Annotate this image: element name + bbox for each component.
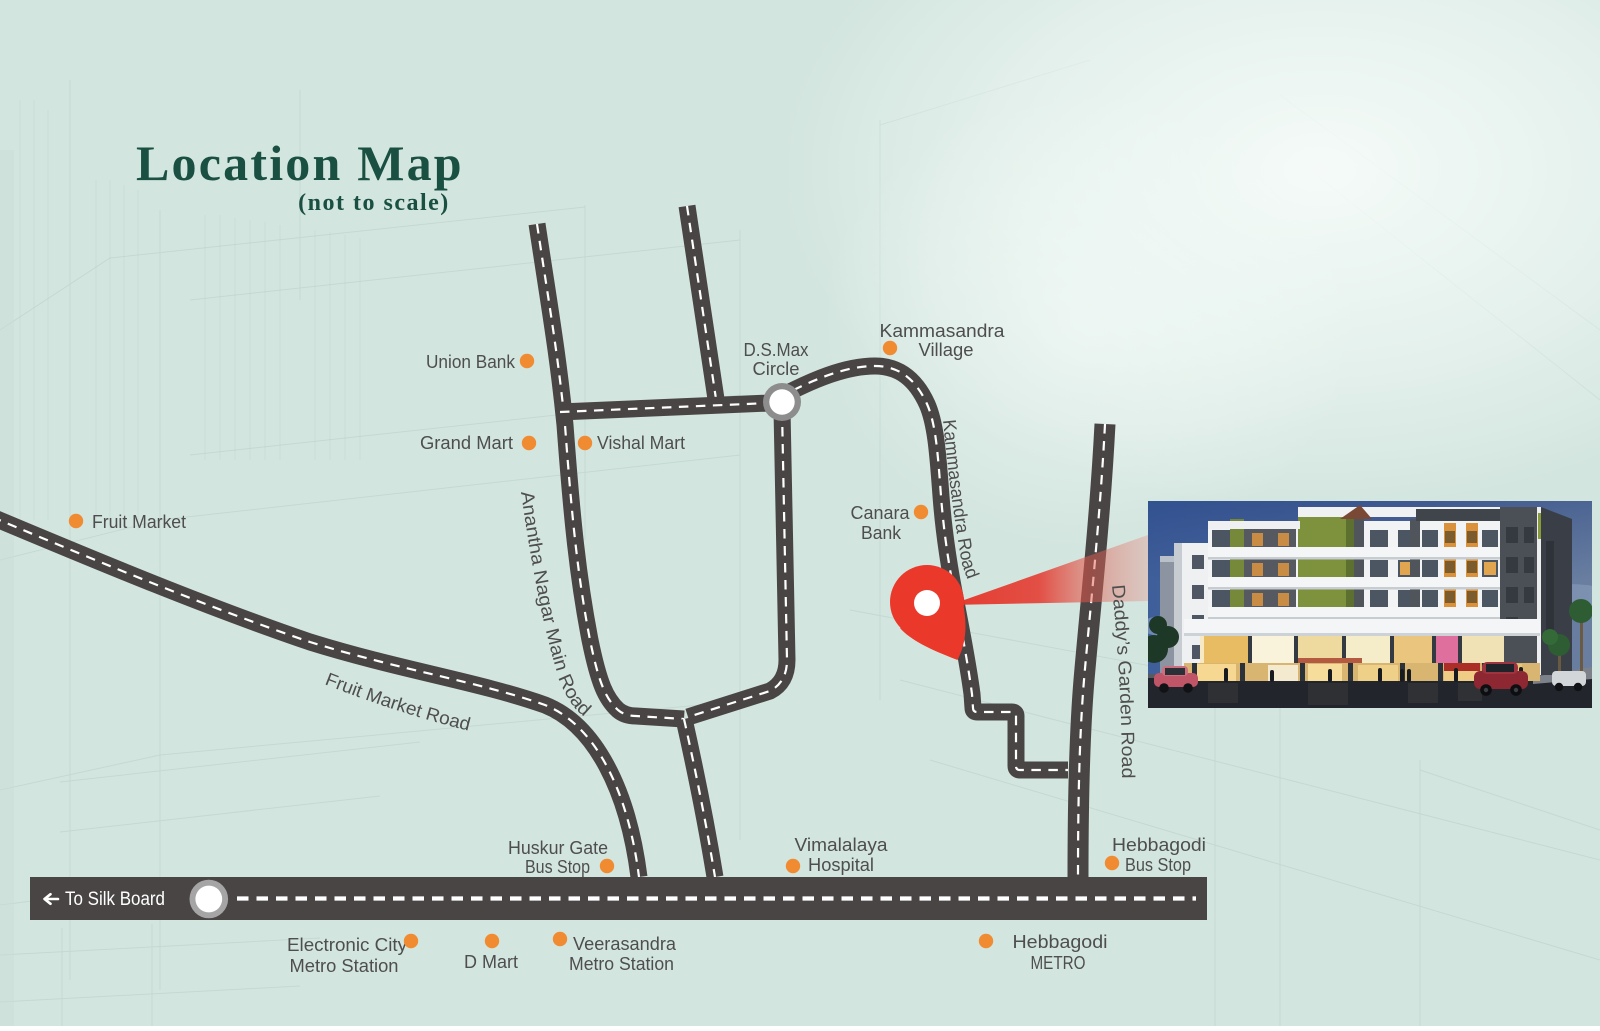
svg-text:Huskur Gate: Huskur Gate bbox=[508, 837, 608, 858]
svg-text:Kammasandra: Kammasandra bbox=[880, 320, 1006, 341]
svg-text:Bank: Bank bbox=[861, 522, 902, 543]
svg-text:Vimalalaya: Vimalalaya bbox=[795, 834, 889, 855]
svg-text:Circle: Circle bbox=[753, 358, 800, 379]
svg-text:(not to scale): (not to scale) bbox=[298, 190, 450, 216]
svg-text:Metro Station: Metro Station bbox=[290, 955, 399, 976]
svg-text:Bus Stop: Bus Stop bbox=[1125, 854, 1191, 875]
svg-text:Bus Stop: Bus Stop bbox=[525, 856, 590, 877]
svg-text:Hospital: Hospital bbox=[808, 854, 874, 875]
svg-text:Location Map: Location Map bbox=[136, 135, 464, 191]
svg-text:Metro Station: Metro Station bbox=[569, 953, 674, 974]
svg-text:Canara: Canara bbox=[851, 502, 911, 523]
svg-text:METRO: METRO bbox=[1031, 952, 1086, 973]
svg-text:Veerasandra: Veerasandra bbox=[573, 933, 677, 954]
svg-text:Vishal Mart: Vishal Mart bbox=[597, 432, 685, 453]
svg-text:Village: Village bbox=[919, 339, 974, 360]
svg-text:Hebbagodi: Hebbagodi bbox=[1112, 834, 1206, 855]
svg-text:Union Bank: Union Bank bbox=[426, 351, 516, 372]
svg-text:Hebbagodi: Hebbagodi bbox=[1013, 931, 1108, 952]
svg-text:Grand Mart: Grand Mart bbox=[420, 432, 513, 453]
svg-text:D.S.Max: D.S.Max bbox=[744, 339, 810, 360]
svg-text:Electronic City: Electronic City bbox=[287, 934, 408, 955]
svg-text:Fruit Market: Fruit Market bbox=[92, 511, 186, 532]
svg-text:To Silk Board: To Silk Board bbox=[65, 889, 165, 910]
svg-text:D Mart: D Mart bbox=[464, 951, 518, 972]
